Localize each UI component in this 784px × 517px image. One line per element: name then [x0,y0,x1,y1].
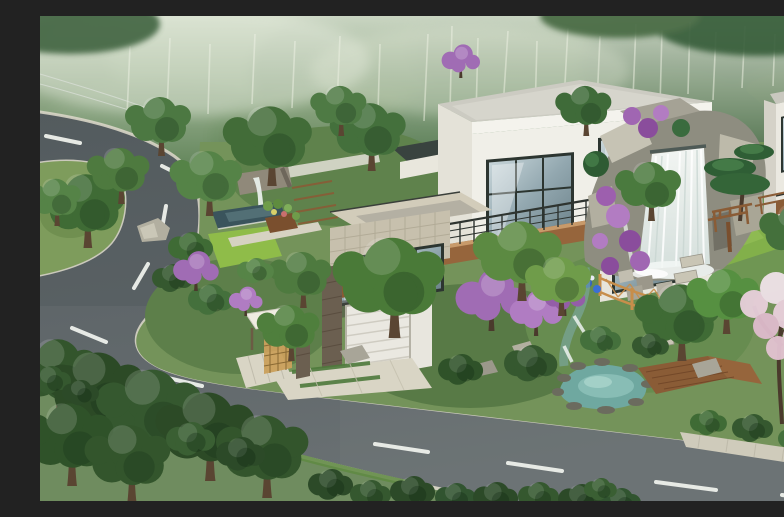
villa-rendering: Hillside Villa Landscape Rendering Hills… [40,16,784,501]
scene-canvas: Hillside Villa Landscape Rendering [40,16,784,501]
